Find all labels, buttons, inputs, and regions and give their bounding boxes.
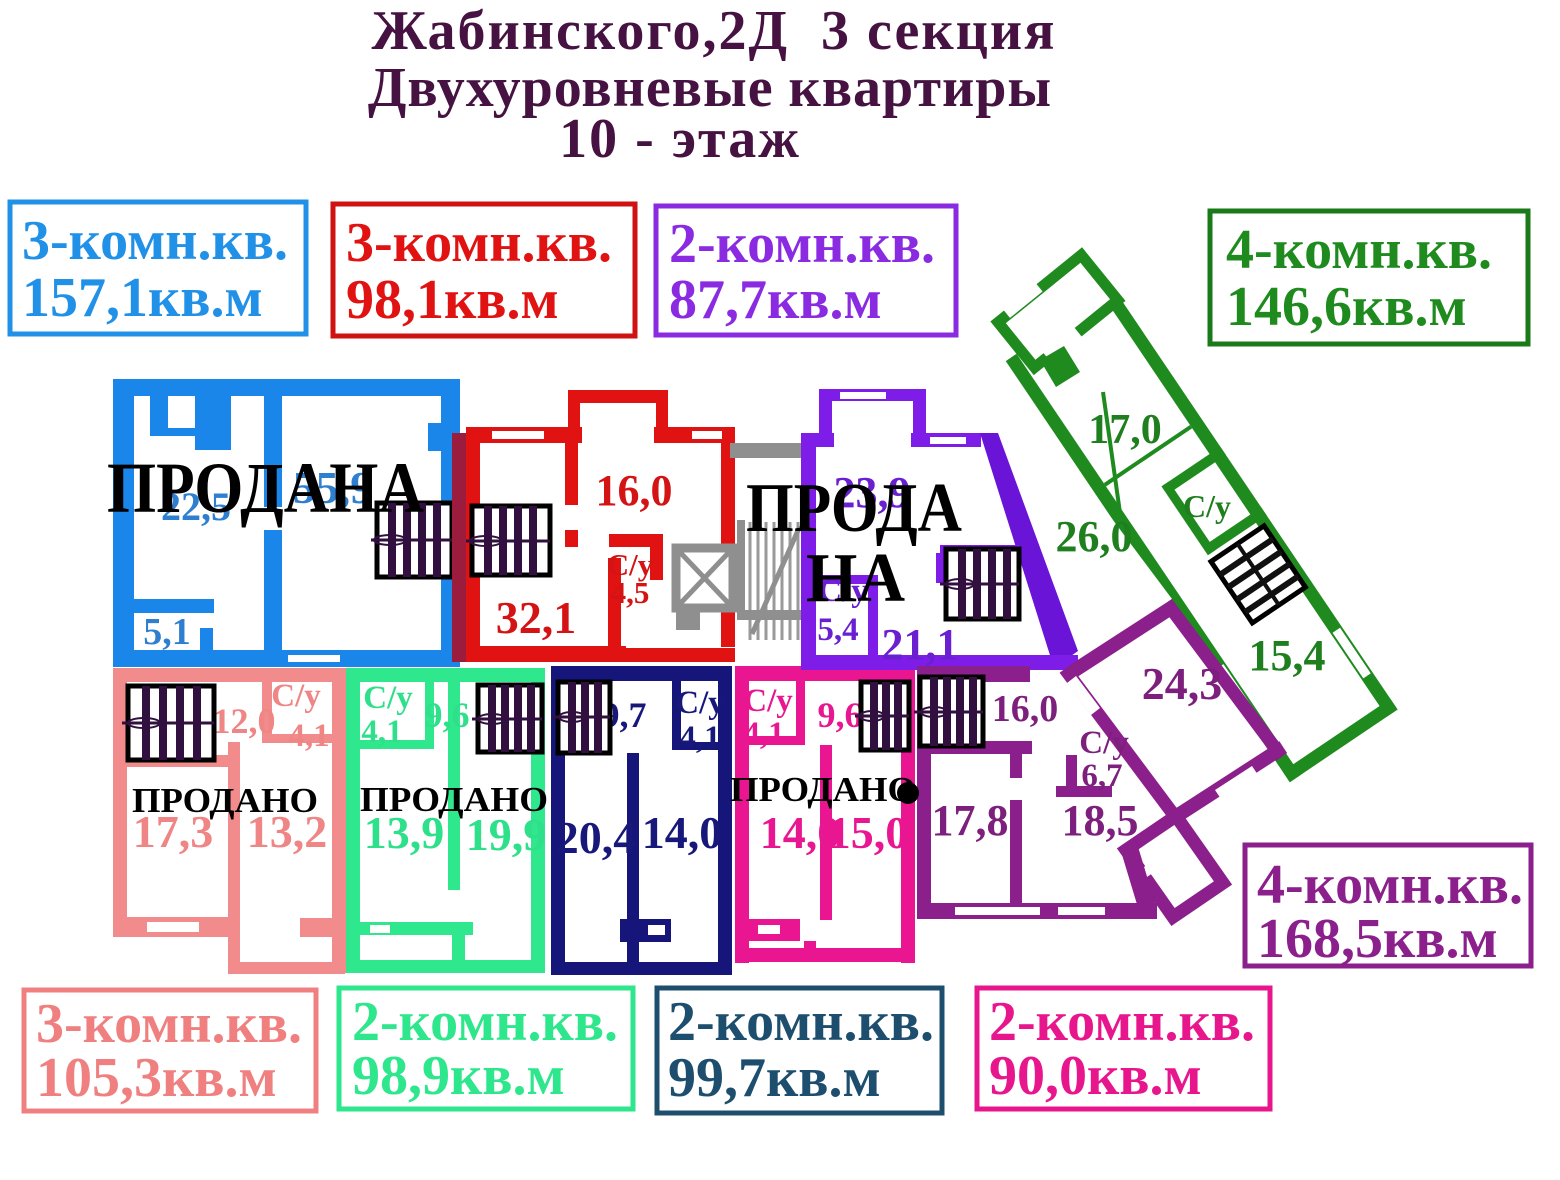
svg-text:16,0: 16,0 xyxy=(596,466,673,515)
svg-text:ПРОДАНО: ПРОДАНО xyxy=(730,770,916,809)
svg-text:3-комн.кв.: 3-комн.кв. xyxy=(22,210,288,272)
svg-text:4,1: 4,1 xyxy=(361,714,402,750)
svg-text:98,9кв.м: 98,9кв.м xyxy=(352,1045,565,1107)
svg-text:С/у: С/у xyxy=(363,680,413,716)
svg-text:18,5: 18,5 xyxy=(1062,796,1139,845)
svg-text:ПРОДАНО: ПРОДАНО xyxy=(360,780,548,819)
svg-text:4-комн.кв.: 4-комн.кв. xyxy=(1226,219,1492,281)
svg-text:20,4: 20,4 xyxy=(556,812,637,863)
svg-text:2-комн.кв.: 2-комн.кв. xyxy=(352,991,618,1053)
svg-text:НА: НА xyxy=(806,540,905,617)
svg-text:21,1: 21,1 xyxy=(882,620,959,669)
svg-text:157,1кв.м: 157,1кв.м xyxy=(22,267,263,329)
svg-text:ПРОДАНА: ПРОДАНА xyxy=(107,448,424,528)
svg-text:6,7: 6,7 xyxy=(1081,758,1122,794)
svg-text:17,0: 17,0 xyxy=(1088,407,1162,453)
svg-text:С/у: С/у xyxy=(271,678,321,714)
svg-text:4,1: 4,1 xyxy=(679,720,720,756)
svg-text:2-комн.кв.: 2-комн.кв. xyxy=(669,213,935,275)
svg-text:87,7кв.м: 87,7кв.м xyxy=(669,269,882,331)
svg-text:4,1: 4,1 xyxy=(743,716,784,752)
svg-text:99,7кв.м: 99,7кв.м xyxy=(668,1047,881,1109)
svg-text:ПРОДАНО: ПРОДАНО xyxy=(132,781,318,820)
svg-text:16,0: 16,0 xyxy=(992,688,1059,730)
svg-text:5,1: 5,1 xyxy=(143,611,191,653)
svg-text:15,4: 15,4 xyxy=(1249,631,1326,680)
svg-text:26,0: 26,0 xyxy=(1056,512,1133,561)
svg-text:3-комн.кв.: 3-комн.кв. xyxy=(346,212,612,274)
svg-text:5,4: 5,4 xyxy=(817,612,858,648)
svg-text:146,6кв.м: 146,6кв.м xyxy=(1226,276,1467,338)
svg-text:3-комн.кв.: 3-комн.кв. xyxy=(36,993,302,1055)
svg-text:С/у: С/у xyxy=(1183,488,1231,524)
svg-text:32,1: 32,1 xyxy=(496,592,577,643)
svg-text:4-комн.кв.: 4-комн.кв. xyxy=(1257,854,1523,916)
svg-text:105,3кв.м: 105,3кв.м xyxy=(36,1047,277,1109)
svg-text:2-комн.кв.: 2-комн.кв. xyxy=(989,991,1255,1053)
svg-text:С/у: С/у xyxy=(675,685,725,721)
svg-text:90,0кв.м: 90,0кв.м xyxy=(989,1045,1202,1107)
svg-text:4,1: 4,1 xyxy=(288,718,329,754)
svg-text:10 - этаж: 10 - этаж xyxy=(559,108,801,170)
svg-text:С/у: С/у xyxy=(1079,725,1129,761)
svg-text:9,6: 9,6 xyxy=(425,695,470,735)
svg-text:Жабинского,2Д 3 секция: Жабинского,2Д 3 секция xyxy=(372,0,1057,62)
svg-text:15,0: 15,0 xyxy=(828,807,909,858)
svg-text:17,8: 17,8 xyxy=(932,796,1009,845)
svg-text:168,5кв.м: 168,5кв.м xyxy=(1257,908,1498,970)
svg-text:4,5: 4,5 xyxy=(611,575,650,610)
svg-text:24,3: 24,3 xyxy=(1142,658,1223,709)
svg-text:С/у: С/у xyxy=(743,683,793,719)
svg-text:14,0: 14,0 xyxy=(642,807,723,858)
svg-text:12,0: 12,0 xyxy=(213,701,276,741)
svg-text:2-комн.кв.: 2-комн.кв. xyxy=(668,991,934,1053)
svg-text:ПРОДА: ПРОДА xyxy=(746,470,962,547)
svg-text:98,1кв.м: 98,1кв.м xyxy=(346,269,559,331)
